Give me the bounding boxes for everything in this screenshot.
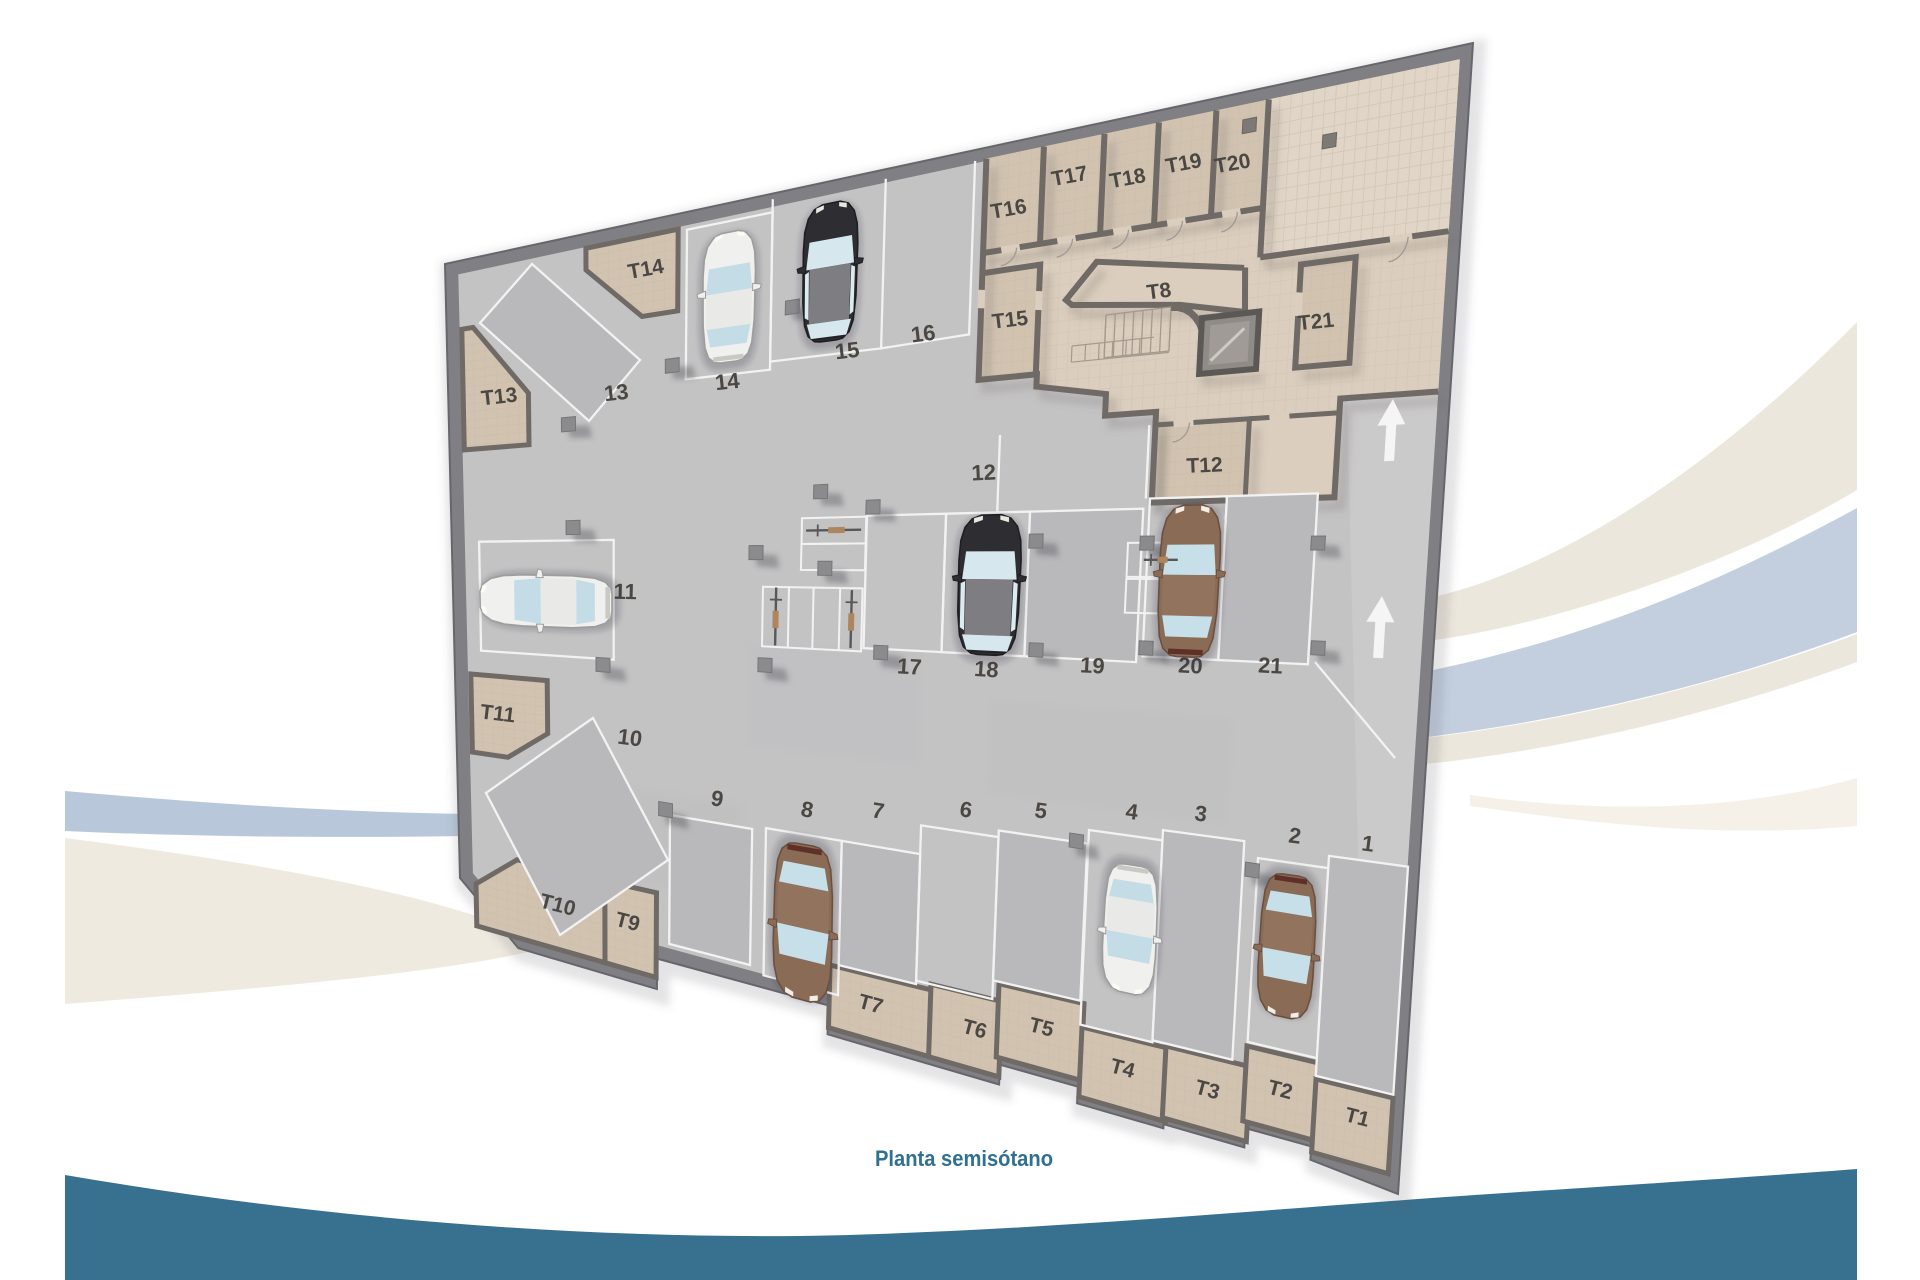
svg-text:T8: T8 — [1145, 279, 1173, 305]
svg-text:Planta semisótano: Planta semisótano — [875, 1146, 1053, 1171]
svg-text:14: 14 — [714, 368, 742, 396]
svg-text:16: 16 — [909, 320, 936, 348]
svg-text:10: 10 — [616, 724, 643, 752]
svg-text:T11: T11 — [479, 700, 517, 727]
svg-text:12: 12 — [971, 459, 997, 485]
svg-text:T12: T12 — [1186, 453, 1223, 477]
svg-text:T21: T21 — [1297, 309, 1336, 336]
svg-text:T15: T15 — [991, 307, 1030, 334]
svg-text:T13: T13 — [480, 383, 519, 410]
svg-text:13: 13 — [603, 379, 630, 406]
svg-text:21: 21 — [1258, 652, 1284, 678]
svg-text:19: 19 — [1079, 652, 1105, 678]
